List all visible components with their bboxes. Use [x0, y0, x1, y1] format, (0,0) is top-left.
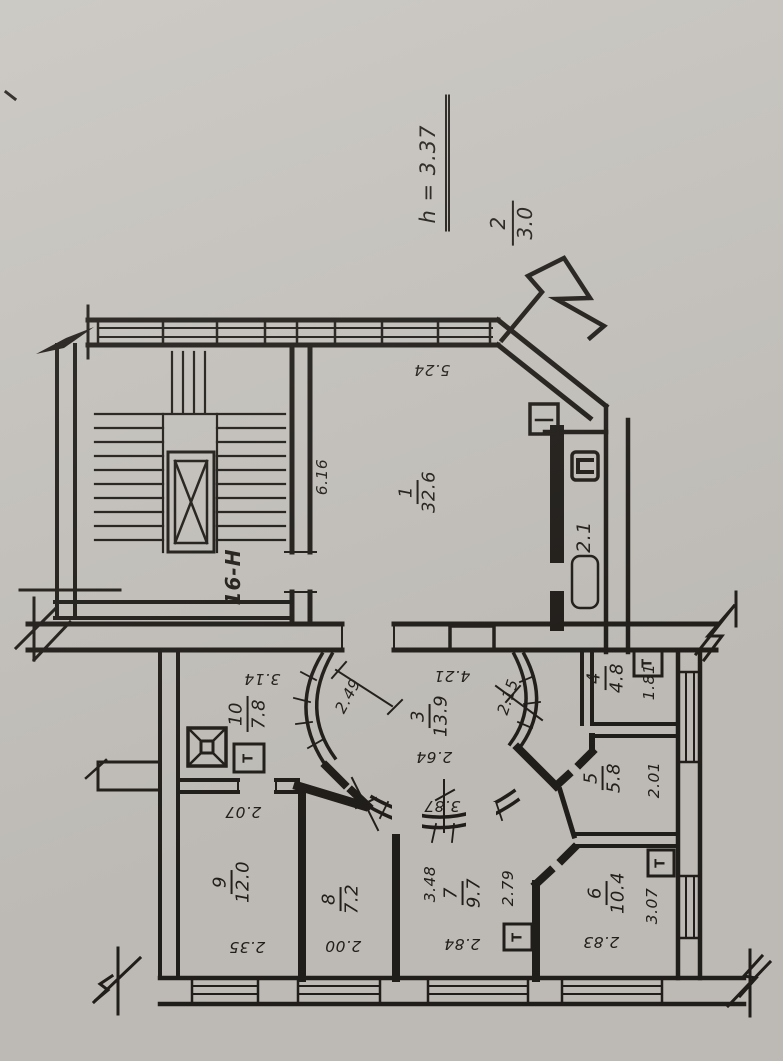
radiator-symbol: Т	[654, 858, 669, 867]
balcony-fixture	[572, 452, 598, 480]
dim-hall-top: 4.21	[434, 667, 471, 685]
dim-hall-mid: 2.64	[416, 748, 453, 766]
floor-number-note: 2 3.0	[488, 200, 536, 245]
dim-room4-right: 1.81	[640, 664, 658, 701]
vent-shaft-symbol	[188, 728, 226, 766]
dim-room9-top: 2.07	[225, 803, 262, 821]
balcony-area-label: 2.1	[573, 521, 595, 553]
dim-room6-right: 3.07	[643, 888, 661, 925]
scan-speck	[6, 92, 15, 99]
room-10-label: 10 7.8	[227, 696, 270, 732]
dim-room6-bottom: 2.83	[583, 933, 620, 951]
floor-plan-drawing	[0, 0, 783, 1061]
room-7-label: 7 9.7	[442, 878, 485, 908]
room-4-label: 4 4.8	[585, 663, 628, 693]
dim-room10-top: 3.14	[244, 670, 281, 688]
door-opening	[450, 626, 494, 650]
wall-break-mark	[36, 327, 94, 354]
entrance-arrow	[502, 258, 604, 340]
floor-plan-sheet: h = 3.37 2 3.0 16-Н 1 32.6 5.24 6.16 2.1…	[0, 0, 783, 1061]
floor-height: 3.0	[514, 206, 537, 239]
ceiling-height-note: h = 3.37	[416, 94, 450, 231]
room-9-label: 9 12.0	[211, 861, 254, 903]
dim-room9-bottom: 2.35	[229, 938, 266, 956]
radiator-symbol: Т	[511, 932, 526, 941]
room-8-label: 8 7.2	[320, 884, 363, 914]
dim-room8-bottom: 2.00	[325, 937, 362, 955]
room-1-label: 1 32.6	[397, 471, 440, 513]
balcony-door	[572, 556, 598, 608]
radiator-symbol: Т	[242, 753, 257, 762]
staircase-label: 16-Н	[221, 549, 245, 606]
floor-number: 2	[488, 200, 514, 245]
dim-room7-right: 2.79	[499, 870, 517, 907]
dim-room5-right: 2.01	[645, 762, 663, 799]
dim-room1-left: 6.16	[313, 459, 331, 496]
dim-room1-top: 5.24	[414, 361, 451, 379]
break-mark-bottom-left	[94, 948, 140, 1014]
room-3-label: 3 13.9	[409, 695, 452, 737]
room-6-label: 6 10.4	[586, 872, 629, 914]
dim-hall-bottom: 3.87	[424, 797, 461, 815]
room-5-label: 5 5.8	[582, 763, 625, 793]
radiator-symbol: Т	[641, 658, 656, 667]
dim-room7-bottom: 2.84	[444, 935, 481, 953]
dim-room7-left: 3.48	[421, 866, 439, 903]
